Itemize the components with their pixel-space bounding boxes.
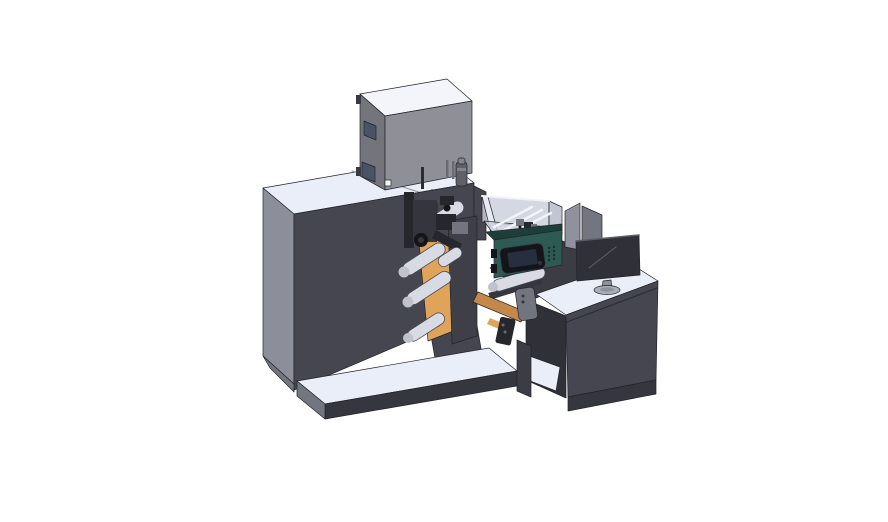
roller-end-cap <box>399 267 410 278</box>
machine-left-face <box>263 188 294 384</box>
roller-end-cap <box>488 282 498 292</box>
guide-rod <box>421 167 424 189</box>
mech-knob <box>444 205 451 212</box>
housing-vent-slot <box>446 160 449 178</box>
cad-viewport <box>0 0 888 522</box>
vent-dot <box>553 250 555 252</box>
vent-dot <box>553 254 555 256</box>
mech-cap <box>440 196 454 205</box>
printer-housing <box>356 79 472 190</box>
vent-dot <box>553 246 555 248</box>
bottle-cap <box>458 158 465 164</box>
housing-label-detail <box>385 180 391 186</box>
carriage-block <box>516 219 524 226</box>
mech-hub-core <box>418 237 424 243</box>
machine-render <box>0 0 888 522</box>
touchscreen-button[interactable] <box>538 261 542 265</box>
mech-frame <box>404 192 414 248</box>
vent-dot <box>548 255 550 257</box>
sensor-device <box>515 287 538 321</box>
vent-dot <box>548 259 550 261</box>
monitor-stand-base-inner <box>600 287 614 291</box>
roller-end-cap <box>403 333 413 343</box>
vent-dot <box>553 258 555 260</box>
panel-tab <box>491 249 497 258</box>
bottle-body <box>456 162 467 186</box>
housing-hinge <box>356 95 361 104</box>
housing-hinge <box>356 167 361 176</box>
web-guide-plate <box>448 216 477 344</box>
panel-tab <box>491 264 497 273</box>
desk-left-leg <box>517 340 531 397</box>
mech-clamp <box>428 203 438 211</box>
roller-end-cap <box>403 297 414 308</box>
bottle-band <box>457 168 466 171</box>
mech-bracket <box>452 222 468 234</box>
supply-bottle <box>456 158 467 186</box>
bracket-hole <box>502 324 505 327</box>
bracket-hole <box>504 331 507 334</box>
housing-vent-slot <box>452 161 455 179</box>
monitor-panel[interactable] <box>576 235 640 281</box>
vent-dot <box>548 247 550 249</box>
vent-dot <box>548 251 550 253</box>
sensor-dot <box>522 301 525 304</box>
sensor-dot <box>522 295 525 298</box>
